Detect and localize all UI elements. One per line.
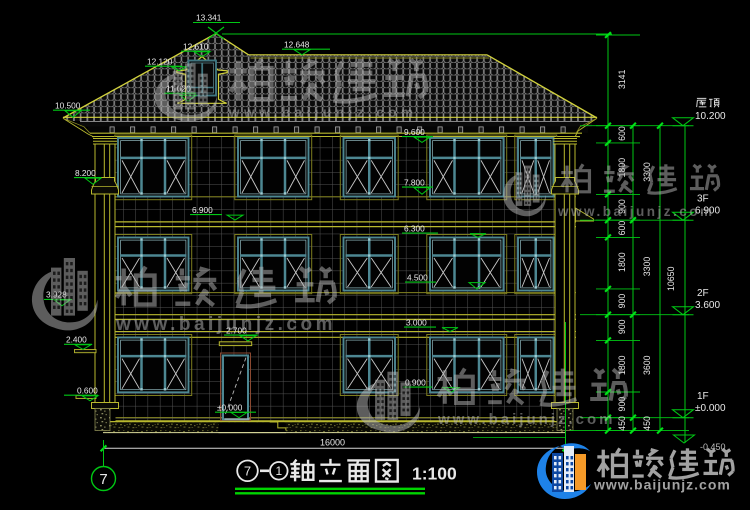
svg-text:10650: 10650 [666, 266, 676, 291]
svg-text:7: 7 [244, 464, 251, 479]
svg-text:www.baijunjz.com: www.baijunjz.com [228, 105, 418, 120]
svg-text:3141: 3141 [617, 69, 627, 89]
svg-text:600: 600 [617, 221, 627, 236]
svg-text:12.120: 12.120 [147, 57, 173, 67]
svg-text:1F: 1F [697, 391, 709, 402]
svg-text:900: 900 [617, 319, 627, 334]
svg-text:450: 450 [617, 416, 627, 431]
svg-text:1800: 1800 [617, 252, 627, 272]
svg-text:4.500: 4.500 [407, 273, 428, 283]
svg-text:3.000: 3.000 [406, 318, 427, 328]
svg-text:7: 7 [99, 471, 107, 488]
svg-text:±0.000: ±0.000 [695, 403, 726, 414]
svg-text:10.500: 10.500 [55, 101, 81, 111]
svg-text:www.baijunjz.com: www.baijunjz.com [115, 314, 336, 335]
svg-text:900: 900 [617, 294, 627, 309]
svg-text:www.baijunjz.com: www.baijunjz.com [437, 411, 615, 428]
svg-text:450: 450 [642, 416, 652, 431]
svg-text:3600: 3600 [642, 355, 652, 375]
svg-text:13.341: 13.341 [196, 13, 222, 23]
svg-text:3300: 3300 [642, 257, 652, 277]
svg-text:±0.000: ±0.000 [217, 403, 243, 413]
svg-text:12.648: 12.648 [284, 40, 310, 50]
svg-text:2.400: 2.400 [66, 335, 87, 345]
svg-text:1: 1 [275, 464, 282, 478]
svg-text:6.300: 6.300 [404, 224, 425, 234]
svg-text:0.600: 0.600 [77, 386, 98, 396]
svg-text:7.800: 7.800 [404, 178, 425, 188]
svg-text:2F: 2F [697, 288, 709, 299]
svg-text:10.200: 10.200 [695, 111, 726, 122]
svg-text:6.900: 6.900 [192, 205, 213, 215]
svg-text:8.200: 8.200 [75, 168, 96, 178]
svg-text:600: 600 [617, 126, 627, 141]
svg-text:www.baijunjz.com: www.baijunjz.com [557, 204, 715, 219]
svg-text:www.baijunjz.com: www.baijunjz.com [593, 477, 731, 493]
svg-text:9.600: 9.600 [404, 127, 425, 137]
svg-text:12.610: 12.610 [183, 42, 209, 52]
svg-text:16000: 16000 [320, 438, 345, 448]
svg-text:3.600: 3.600 [695, 300, 720, 311]
svg-text:1:100: 1:100 [412, 464, 457, 484]
